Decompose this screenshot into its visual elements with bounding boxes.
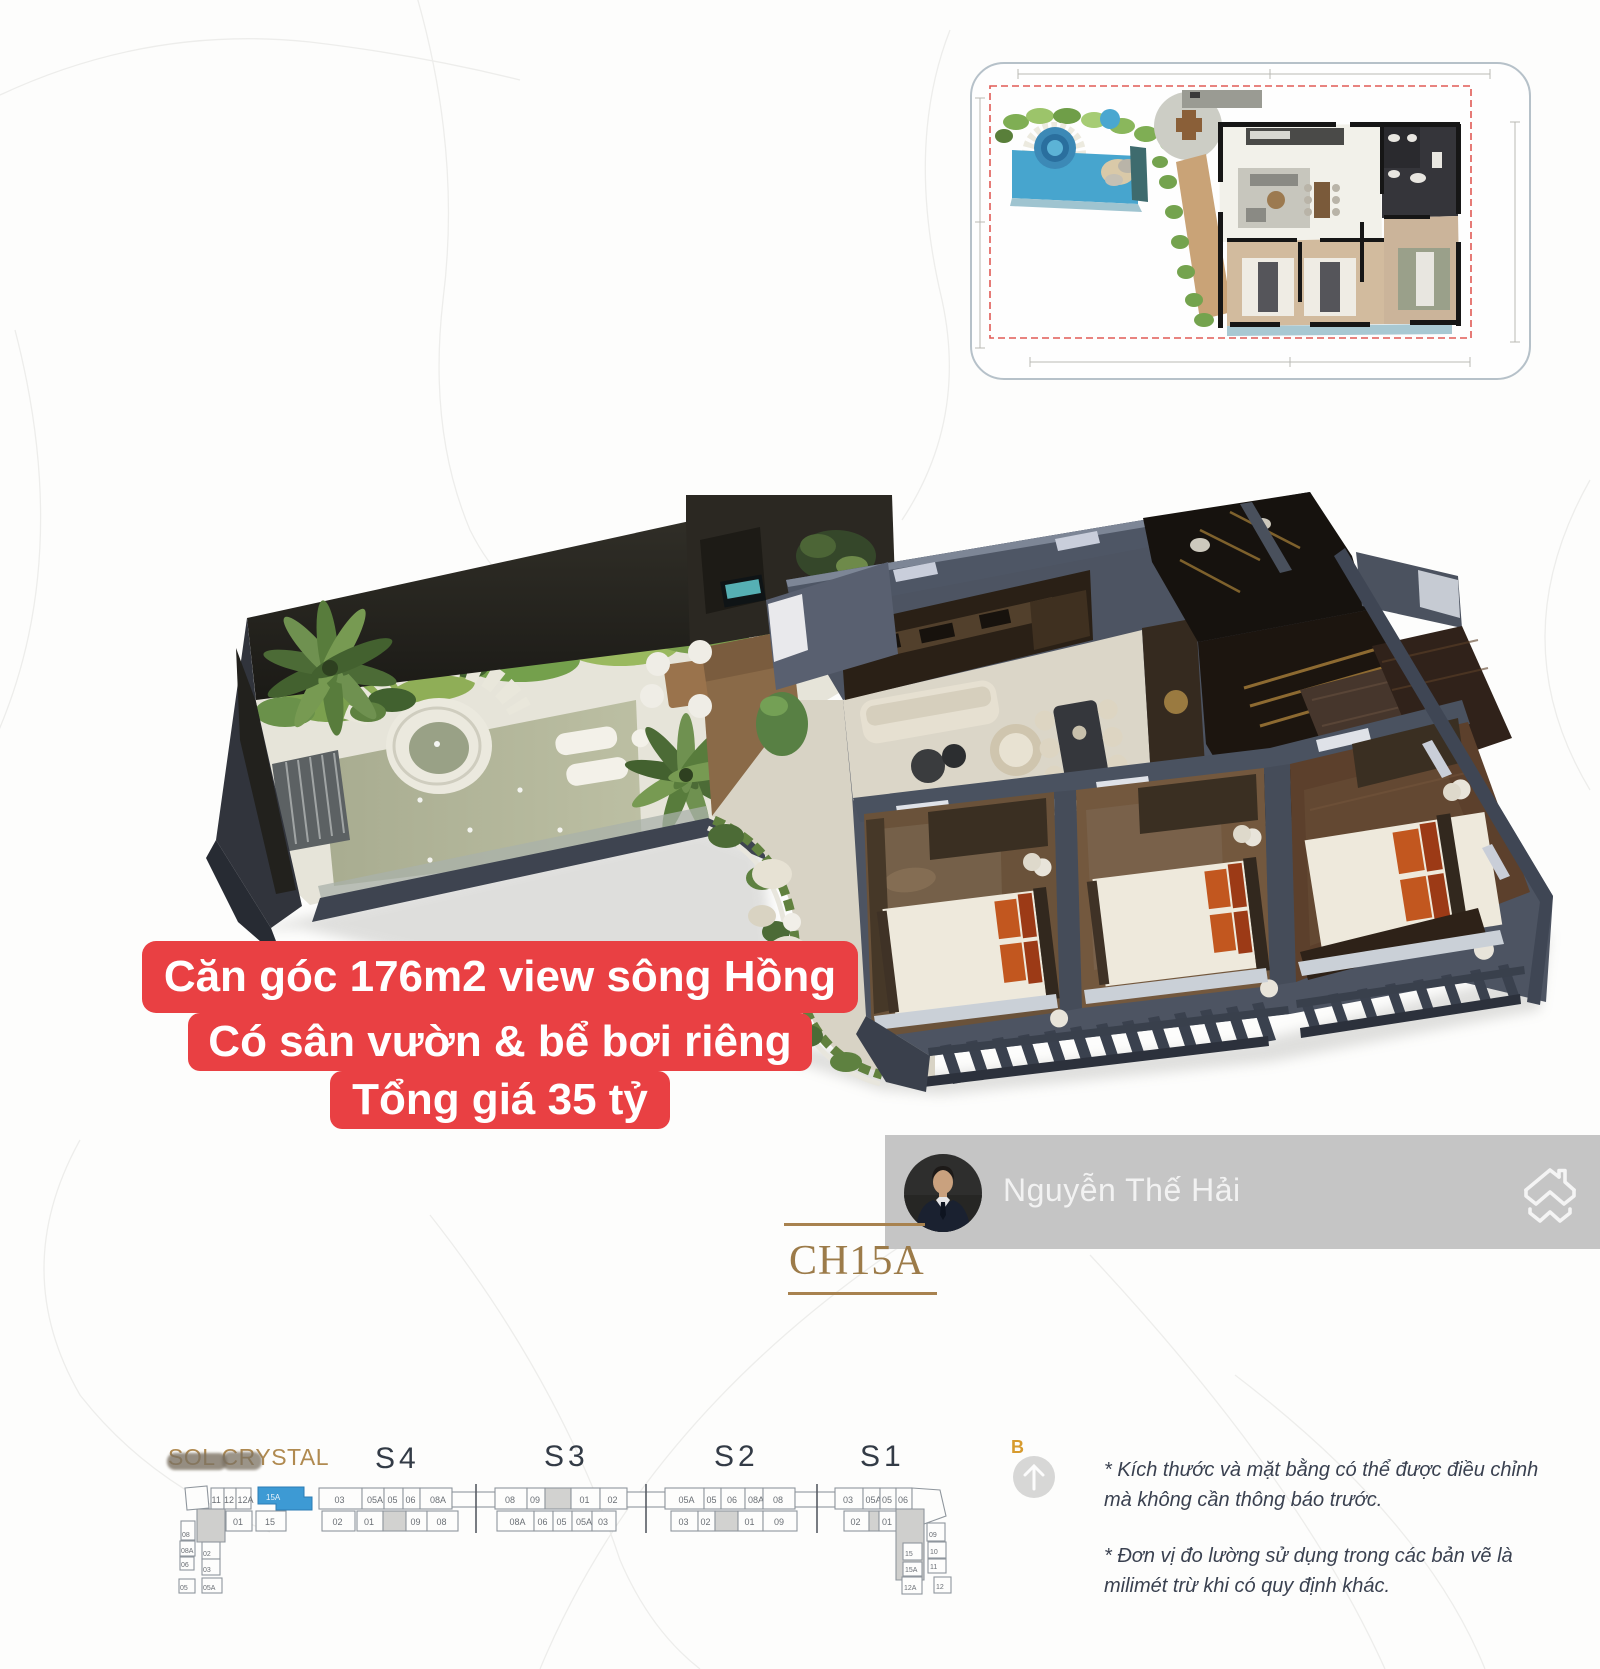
svg-text:02: 02 bbox=[608, 1495, 618, 1505]
svg-text:06: 06 bbox=[406, 1495, 416, 1505]
svg-text:08: 08 bbox=[773, 1495, 783, 1505]
svg-text:06: 06 bbox=[181, 1562, 189, 1569]
svg-text:01: 01 bbox=[233, 1517, 243, 1527]
svg-text:10: 10 bbox=[930, 1549, 938, 1556]
svg-text:06: 06 bbox=[727, 1495, 737, 1505]
svg-text:12: 12 bbox=[224, 1495, 234, 1505]
svg-text:03: 03 bbox=[335, 1495, 345, 1505]
svg-text:08: 08 bbox=[182, 1532, 190, 1539]
svg-text:11: 11 bbox=[930, 1564, 937, 1571]
svg-text:09: 09 bbox=[411, 1517, 421, 1527]
svg-text:08A: 08A bbox=[181, 1548, 194, 1555]
svg-text:02: 02 bbox=[701, 1517, 711, 1527]
svg-text:08A: 08A bbox=[510, 1517, 526, 1527]
svg-text:15: 15 bbox=[905, 1551, 913, 1558]
svg-text:05: 05 bbox=[707, 1495, 717, 1505]
svg-text:08A: 08A bbox=[748, 1495, 764, 1505]
svg-text:02: 02 bbox=[203, 1551, 211, 1558]
svg-text:15A: 15A bbox=[266, 1493, 281, 1502]
svg-text:05A: 05A bbox=[203, 1585, 216, 1592]
svg-text:01: 01 bbox=[745, 1517, 755, 1527]
svg-text:05: 05 bbox=[180, 1585, 188, 1592]
svg-text:03: 03 bbox=[843, 1495, 853, 1505]
svg-text:12A: 12A bbox=[238, 1495, 254, 1505]
svg-text:08: 08 bbox=[505, 1495, 515, 1505]
svg-text:05A: 05A bbox=[576, 1517, 592, 1527]
svg-text:01: 01 bbox=[364, 1517, 374, 1527]
svg-text:03: 03 bbox=[203, 1567, 211, 1574]
svg-text:05A: 05A bbox=[679, 1495, 695, 1505]
svg-text:02: 02 bbox=[851, 1517, 861, 1527]
svg-text:01: 01 bbox=[580, 1495, 590, 1505]
svg-text:08: 08 bbox=[437, 1517, 447, 1527]
svg-text:15A: 15A bbox=[905, 1567, 918, 1574]
svg-text:09: 09 bbox=[929, 1532, 937, 1539]
svg-text:12A: 12A bbox=[904, 1585, 917, 1592]
svg-text:05: 05 bbox=[388, 1495, 398, 1505]
svg-text:11: 11 bbox=[212, 1495, 221, 1505]
svg-text:02: 02 bbox=[333, 1517, 343, 1527]
svg-text:09: 09 bbox=[530, 1495, 540, 1505]
svg-text:05A: 05A bbox=[367, 1495, 383, 1505]
svg-text:05: 05 bbox=[557, 1517, 567, 1527]
svg-text:03: 03 bbox=[679, 1517, 689, 1527]
svg-text:15: 15 bbox=[265, 1517, 275, 1527]
svg-text:03: 03 bbox=[598, 1517, 608, 1527]
svg-text:01: 01 bbox=[882, 1517, 892, 1527]
svg-text:06: 06 bbox=[538, 1517, 548, 1527]
svg-text:09: 09 bbox=[774, 1517, 784, 1527]
svg-text:12: 12 bbox=[936, 1584, 944, 1591]
svg-text:05A: 05A bbox=[866, 1495, 882, 1505]
svg-text:08A: 08A bbox=[430, 1495, 446, 1505]
svg-text:06: 06 bbox=[898, 1495, 908, 1505]
svg-text:05: 05 bbox=[882, 1495, 892, 1505]
